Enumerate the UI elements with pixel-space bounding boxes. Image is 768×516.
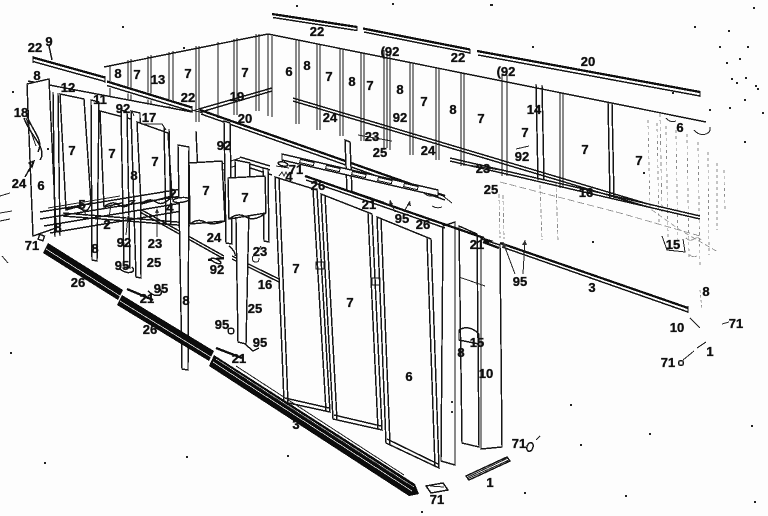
svg-text:26: 26 — [143, 322, 157, 337]
svg-text:24: 24 — [323, 110, 338, 125]
svg-text:92: 92 — [210, 262, 224, 277]
svg-text:8: 8 — [449, 102, 456, 117]
svg-text:21: 21 — [470, 237, 484, 252]
svg-text:92: 92 — [515, 149, 529, 164]
svg-text:25: 25 — [248, 301, 262, 316]
svg-text:8: 8 — [33, 68, 40, 83]
svg-text:18: 18 — [14, 105, 28, 120]
svg-text:4: 4 — [166, 200, 174, 215]
svg-text:23: 23 — [365, 129, 379, 144]
svg-text:1: 1 — [486, 475, 493, 490]
svg-text:7: 7 — [581, 142, 588, 157]
svg-text:23: 23 — [148, 236, 162, 251]
svg-text:6: 6 — [676, 120, 683, 135]
svg-text:5: 5 — [78, 197, 85, 212]
svg-text:(92: (92 — [497, 64, 516, 79]
svg-text:21: 21 — [140, 291, 154, 306]
svg-text:92: 92 — [217, 138, 231, 153]
svg-text:16: 16 — [579, 185, 593, 200]
svg-text:7: 7 — [108, 146, 115, 161]
svg-text:8: 8 — [54, 220, 61, 235]
svg-text:2: 2 — [103, 217, 110, 232]
svg-text:7: 7 — [346, 295, 353, 310]
svg-text:6: 6 — [37, 178, 44, 193]
svg-text:71: 71 — [729, 316, 743, 331]
svg-text:8: 8 — [457, 345, 464, 360]
svg-text:71: 71 — [512, 436, 526, 451]
svg-text:22: 22 — [310, 24, 324, 39]
svg-text:7: 7 — [202, 183, 209, 198]
svg-text:95: 95 — [513, 274, 527, 289]
svg-text:7: 7 — [325, 69, 332, 84]
svg-text:6: 6 — [285, 64, 292, 79]
svg-text:11: 11 — [93, 92, 107, 107]
svg-text:15: 15 — [666, 237, 680, 252]
svg-text:8: 8 — [396, 82, 403, 97]
svg-text:95: 95 — [154, 281, 168, 296]
svg-text:26: 26 — [311, 178, 325, 193]
svg-text:24: 24 — [207, 230, 222, 245]
svg-text:(92: (92 — [381, 44, 400, 59]
svg-text:7: 7 — [635, 153, 642, 168]
svg-text:7: 7 — [477, 111, 484, 126]
svg-text:22: 22 — [28, 40, 42, 55]
svg-text:2: 2 — [169, 186, 176, 201]
svg-text:71: 71 — [430, 492, 444, 507]
svg-text:7: 7 — [184, 66, 191, 81]
svg-text:23: 23 — [476, 161, 490, 176]
svg-text:1: 1 — [706, 344, 713, 359]
svg-text:95: 95 — [215, 317, 229, 332]
svg-text:8: 8 — [702, 284, 709, 299]
svg-text:23: 23 — [253, 244, 267, 259]
svg-text:7: 7 — [241, 65, 248, 80]
svg-text:7: 7 — [133, 67, 140, 82]
svg-text:22: 22 — [181, 90, 195, 105]
svg-text:92: 92 — [117, 235, 131, 250]
svg-text:92: 92 — [393, 110, 407, 125]
svg-text:13: 13 — [151, 72, 165, 87]
svg-text:22: 22 — [451, 50, 465, 65]
svg-text:7: 7 — [241, 190, 248, 205]
svg-text:25: 25 — [373, 145, 387, 160]
svg-text:24: 24 — [421, 143, 436, 158]
svg-text:4: 4 — [285, 169, 293, 184]
svg-text:26: 26 — [71, 275, 85, 290]
svg-text:7: 7 — [420, 94, 427, 109]
svg-text:10: 10 — [479, 366, 493, 381]
svg-text:7: 7 — [521, 125, 528, 140]
svg-text:25: 25 — [484, 182, 498, 197]
svg-text:71: 71 — [25, 238, 39, 253]
svg-text:95: 95 — [253, 335, 267, 350]
svg-text:3: 3 — [292, 417, 299, 432]
svg-text:3: 3 — [588, 280, 595, 295]
svg-text:17: 17 — [142, 110, 156, 125]
svg-text:7: 7 — [366, 78, 373, 93]
svg-text:14: 14 — [527, 102, 542, 117]
svg-text:8: 8 — [91, 241, 98, 256]
svg-text:20: 20 — [581, 54, 595, 69]
svg-text:21: 21 — [362, 197, 376, 212]
svg-text:25: 25 — [147, 255, 161, 270]
svg-text:95: 95 — [395, 211, 409, 226]
svg-text:7: 7 — [68, 143, 75, 158]
svg-text:12: 12 — [61, 80, 75, 95]
svg-text:6: 6 — [405, 369, 412, 384]
svg-text:24: 24 — [12, 176, 27, 191]
svg-text:8: 8 — [114, 66, 121, 81]
svg-text:15: 15 — [470, 335, 484, 350]
svg-text:8: 8 — [303, 58, 310, 73]
svg-text:8: 8 — [130, 168, 137, 183]
svg-text:16: 16 — [258, 277, 272, 292]
svg-text:10: 10 — [670, 320, 684, 335]
svg-text:95: 95 — [115, 258, 129, 273]
svg-text:9: 9 — [45, 34, 52, 49]
svg-text:21: 21 — [232, 351, 246, 366]
svg-text:8: 8 — [182, 293, 189, 308]
svg-text:26: 26 — [416, 217, 430, 232]
svg-text:7: 7 — [151, 154, 158, 169]
svg-text:19: 19 — [230, 89, 244, 104]
svg-text:20: 20 — [238, 111, 252, 126]
svg-text:92: 92 — [116, 101, 130, 116]
svg-text:71: 71 — [661, 355, 675, 370]
svg-text:7: 7 — [292, 261, 299, 276]
svg-text:8: 8 — [348, 74, 355, 89]
